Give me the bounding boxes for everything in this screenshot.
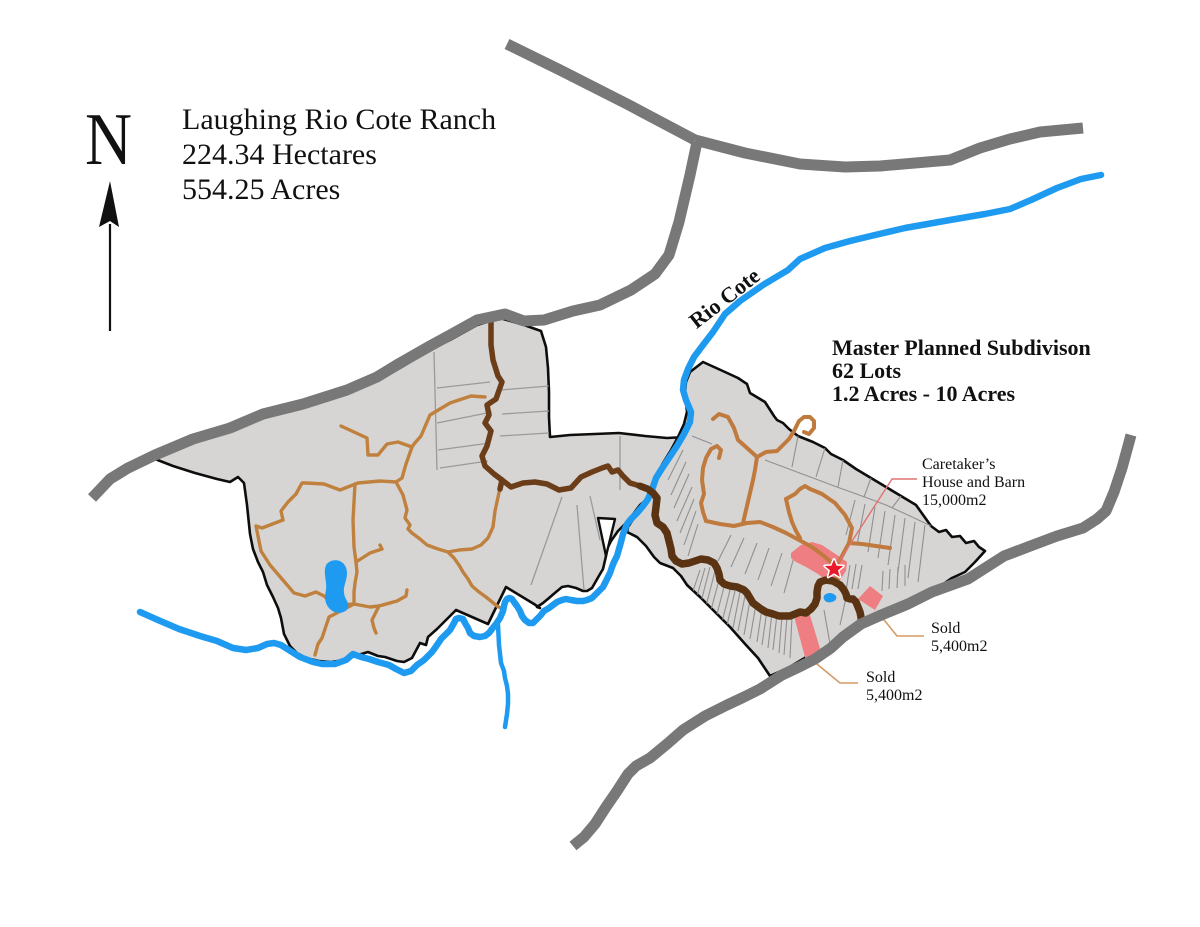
svg-text:62 Lots: 62 Lots xyxy=(832,358,902,383)
svg-text:Caretaker’s: Caretaker’s xyxy=(922,456,995,473)
svg-text:1.2 Acres - 10 Acres: 1.2 Acres - 10 Acres xyxy=(832,381,1016,406)
svg-text:224.34 Hectares: 224.34 Hectares xyxy=(182,138,377,171)
svg-text:Laughing Rio Cote Ranch: Laughing Rio Cote Ranch xyxy=(182,103,496,136)
svg-text:Master Planned Subdivison: Master Planned Subdivison xyxy=(832,335,1091,360)
svg-text:5,400m2: 5,400m2 xyxy=(866,687,922,704)
svg-text:Sold: Sold xyxy=(866,669,895,686)
svg-text:5,400m2: 5,400m2 xyxy=(931,638,987,655)
svg-text:Sold: Sold xyxy=(931,620,960,637)
svg-text:554.25 Acres: 554.25 Acres xyxy=(182,173,340,206)
svg-text:N: N xyxy=(85,99,132,181)
svg-text:15,000m2: 15,000m2 xyxy=(922,492,986,509)
svg-text:House and Barn: House and Barn xyxy=(922,474,1025,491)
